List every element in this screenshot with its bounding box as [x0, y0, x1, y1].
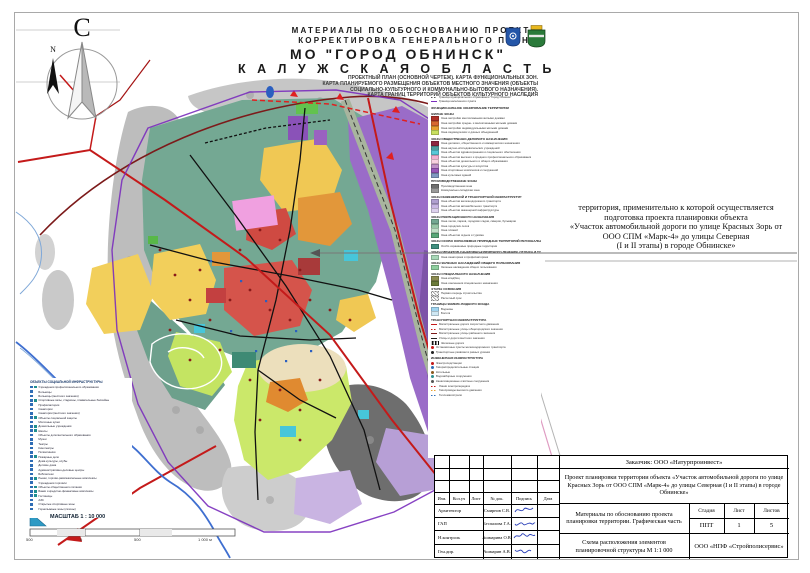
facility-marker-icon: [34, 429, 37, 432]
rail-icon: [431, 341, 439, 345]
legend-row-label: Болота: [441, 312, 450, 315]
obninsk-crest-icon: [505, 27, 521, 47]
legend-row-label: Электроподстанции: [436, 362, 462, 365]
facility-marker-icon: [34, 447, 37, 450]
social-legend-label: Горнолыжные зоны (склоны): [38, 507, 75, 511]
facility-marker-icon: [30, 508, 33, 511]
facility-marker-icon: [30, 429, 33, 432]
signer-role: ГАП: [436, 517, 485, 530]
legend-row-label: Зона садоводческих и дачных объединений: [441, 131, 498, 134]
legend-row-label: Водозаборные сооружения: [436, 375, 472, 378]
facility-marker-icon: [34, 408, 37, 411]
facility-marker-icon: [30, 412, 33, 415]
dot-icon: [431, 346, 434, 349]
legend-row-label: Магистральные дороги скоростного движени…: [439, 323, 499, 326]
legend-row-label: Зона застройки многоэтажными жилыми дома…: [441, 117, 505, 120]
facility-marker-icon: [34, 451, 37, 454]
legend-section-header: ФУНКЦИОНАЛЬНОЕ ЗОНИРОВАНИЕ ТЕРРИТОРИИ: [431, 106, 541, 111]
facility-marker-icon: [30, 486, 33, 489]
legend-row-label: Зона санаториев и профилакториев: [441, 256, 488, 259]
legend-section-header: ЗОНЫ ОСОБО ОХРАНЯЕМЫХ ПРИРОДНЫХ ТЕРРИТОР…: [431, 239, 541, 244]
swatch-icon: [431, 130, 439, 135]
legend-row: Зона санаториев и профилакториев: [431, 255, 541, 260]
legend-row-label: Коммунально-складская зона: [441, 189, 480, 192]
signature-scribble: [513, 505, 537, 515]
facility-marker-icon: [34, 499, 37, 502]
legend-row-label: Водоемы: [441, 308, 453, 311]
sheet-value: 1: [724, 518, 754, 533]
compass-north-letter: С: [73, 13, 90, 42]
legend-row: Зона объектов отдыха и туризма: [431, 233, 541, 238]
legend-row-label: Магистральные улицы районного значения: [439, 332, 495, 335]
facility-marker-icon: [34, 460, 37, 463]
stage-label: Стадия: [689, 503, 724, 518]
signer-role: Архитектор: [436, 504, 485, 517]
facility-marker-icon: [30, 421, 33, 424]
legend-row-label: Зона объектов высшего и среднего професс…: [441, 156, 531, 159]
annotation-line: ООО СПМ «Марк-4» до улицы Северная: [552, 232, 800, 242]
facility-marker-icon: [34, 494, 37, 497]
legend-row: Граница населенного пункта: [431, 100, 541, 105]
scale-tick-label: 500: [134, 537, 141, 542]
legend-row-label: Зона объектов инженерной инфраструктуры: [441, 209, 499, 212]
legend-row-label: Зона объектов отдыха и туризма: [441, 234, 484, 237]
org-name: ООО «НПФ «Стройполисервис»: [691, 534, 787, 559]
title-block: Изм.Кол.учЛист№ док.ПодписьДата Архитект…: [434, 455, 788, 558]
legend-row-label: Канализационные очистные сооружения: [436, 380, 489, 383]
facility-marker-icon: [30, 481, 33, 484]
facility-marker-icon: [34, 481, 37, 484]
legend-row-label: Котельные: [436, 371, 450, 374]
materials-line-2: КОРРЕКТИРОВКА ГЕНЕРАЛЬНОГО ПЛАНА: [238, 36, 538, 46]
facility-marker-icon: [34, 434, 37, 437]
legend-row-label: Зона лесов, парков, городских садов, скв…: [441, 220, 516, 223]
legend-row-label: Особо охраняемые природные территории: [441, 245, 497, 248]
subtitle-lines: ПРОЕКТНЫЙ ПЛАН (ОСНОВНОЙ ЧЕРТЕЖ). КАРТА …: [238, 76, 538, 99]
line-icon: [431, 333, 437, 334]
facility-marker-icon: [30, 477, 33, 480]
sheet-label: Лист: [724, 503, 754, 518]
kaluga-oblast-crest-icon: [527, 25, 546, 48]
tb-divider: [559, 456, 560, 559]
scale-tick-label: 500: [26, 537, 33, 542]
facility-marker-icon: [34, 473, 37, 476]
customer: Заказчик: ООО «Натурпроинвест»: [559, 456, 789, 468]
legend-row-label: Зона кладбищ: [441, 277, 460, 280]
region-title: К А Л У Ж С К А Я О Б Л А С Т Ь: [238, 62, 538, 76]
signer-name: Ашмарин А.В.: [483, 544, 511, 559]
facility-marker-icon: [34, 508, 37, 511]
legend-row-label: Магистральные улицы общегородского значе…: [439, 328, 503, 331]
social-legend-rows: Учреждения профессионального образования…: [30, 385, 132, 511]
north-arrow-icon: [47, 58, 59, 94]
swatch-icon: [431, 244, 439, 249]
dot-icon: [431, 362, 434, 365]
stage-value: ППТ: [689, 518, 724, 533]
facility-marker-icon: [34, 438, 37, 441]
dot-icon: [431, 351, 434, 354]
swatch-icon: [431, 265, 439, 270]
legend-row: Особо охраняемые природные территории: [431, 244, 541, 249]
social-legend-row: Горнолыжные зоны (склоны): [30, 507, 132, 511]
facility-marker-icon: [30, 399, 33, 402]
project-area-annotation: территория, применительно к которой осущ…: [552, 203, 800, 251]
legend-row-label: Расчетный срок: [441, 297, 462, 300]
legend-row-label: Зона спортивных комплексов и сооружений: [441, 169, 498, 172]
facility-marker-icon: [34, 455, 37, 458]
sheets-label: Листов: [754, 503, 789, 518]
facility-marker-icon: [30, 464, 33, 467]
legend-row-label: Зона застройки средне- и малоэтажными жи…: [441, 122, 517, 125]
annotation-line: территория, применительно к которой осущ…: [552, 203, 800, 213]
signer-role: Н.контроль: [436, 530, 485, 544]
signer-name: Беспалова Г.А.: [483, 517, 511, 530]
facility-marker-icon: [30, 395, 33, 398]
legend-row-label: Зона застройки индивидуальными жилыми до…: [441, 127, 508, 130]
facility-marker-icon: [30, 451, 33, 454]
legend-row-label: Тепломагистрали: [439, 394, 462, 397]
annotation-line: подготовка проекта планировки объекта: [552, 213, 800, 223]
signer-name: Ашмарина О.В.: [483, 530, 511, 544]
line-dash-icon: [431, 395, 437, 396]
legend-row-label: Первая очередь строительства: [441, 292, 482, 295]
hatch-icon: [431, 296, 439, 301]
swatch-icon: [431, 173, 439, 178]
materials-line-1: МАТЕРИАЛЫ ПО ОБОСНОВАНИЮ ПРОЕКТА: [238, 26, 538, 36]
compass-rose: С N: [47, 13, 117, 119]
project-title: Проект планировки территории объекта «Уч…: [563, 469, 785, 502]
facility-marker-icon: [30, 503, 33, 506]
legend-row-label: Зеленые насаждения общего пользования: [441, 266, 497, 269]
facility-marker-icon: [34, 486, 37, 489]
legend-row: Зона объектов инженерной инфраструктуры: [431, 209, 541, 214]
signature-scribble: [513, 545, 537, 555]
facility-marker-icon: [34, 403, 37, 406]
line-dash-icon: [431, 390, 437, 391]
revision-header-cell: Изм.: [435, 492, 449, 504]
facility-marker-icon: [30, 494, 33, 497]
facility-marker-icon: [30, 460, 33, 463]
facility-marker-icon: [34, 395, 37, 398]
revision-header-cell: Лист: [469, 492, 483, 504]
facility-marker-icon: [30, 434, 33, 437]
legend-row: Расчетный срок: [431, 296, 541, 301]
facility-marker-icon: [30, 438, 33, 441]
legend-row-label: Газораспределительные станции: [436, 366, 479, 369]
swatch-icon: [431, 188, 439, 193]
legend-row-label: Зона культовых зданий: [441, 174, 471, 177]
facility-marker-icon: [34, 390, 37, 393]
scale-tick-label: 1 000 м: [198, 537, 212, 542]
legend-row-label: Зона озеленения специального назначения: [441, 282, 498, 285]
legend-row-label: Железные дороги: [441, 342, 464, 345]
functional-zones-legend: Граница муниципального образования "Горо…: [428, 95, 541, 458]
facility-marker-icon: [34, 442, 37, 445]
signature-scribble: [513, 531, 537, 541]
facility-marker-icon: [34, 477, 37, 480]
facility-marker-icon: [34, 416, 37, 419]
facility-marker-icon: [34, 399, 37, 402]
facility-marker-icon: [30, 403, 33, 406]
facility-marker-icon: [30, 416, 33, 419]
legend-row-label: Зона научно-исследовательских учреждений: [441, 147, 500, 150]
facility-marker-icon: [30, 442, 33, 445]
line-dash-icon: [431, 386, 437, 387]
facility-marker-icon: [34, 490, 37, 493]
facility-marker-icon: [30, 408, 33, 411]
legend-row-label: Зона объектов здравоохранения и социальн…: [441, 151, 521, 154]
facility-marker-icon: [34, 425, 37, 428]
legend-row: Зона садоводческих и дачных объединений: [431, 130, 541, 135]
signature-scribble: [513, 518, 537, 528]
scale-tick-label: 0: [80, 537, 82, 542]
line-icon: [431, 338, 437, 339]
facility-marker-icon: [30, 468, 33, 471]
revision-header-cell: Дата: [537, 492, 559, 504]
legend-row-label: Линии электропередачи: [439, 385, 470, 388]
facility-marker-icon: [30, 473, 33, 476]
dot-icon: [431, 366, 434, 369]
legend-section-header: ЗОНЫ ОБЪЕКТОВ САНАТОРНО-КУРОРТНОГО ЛЕЧЕН…: [431, 250, 541, 255]
legend-row-label: Газопроводы высокого давления: [439, 389, 482, 392]
swatch-icon: [431, 311, 439, 316]
signer-name: Смирнов С.В.: [483, 504, 511, 517]
legend-row: Зеленые насаждения общего пользования: [431, 266, 541, 271]
legend-row: Зона озеленения специального назначения: [431, 281, 541, 286]
sheets-value: 5: [754, 518, 789, 533]
legend-row-label: Зона пляжей: [441, 229, 458, 232]
swatch-icon: [431, 208, 439, 213]
legend-row-label: Остановочные пункты железнодорожного тра…: [436, 346, 506, 349]
legend-row: Транспортные развязки в разных уровнях: [431, 350, 541, 355]
line-dash-icon: [431, 329, 437, 330]
legend-row-label: Транспортные развязки в разных уровнях: [436, 351, 490, 354]
facility-marker-icon: [34, 421, 37, 424]
facility-marker-icon: [30, 386, 33, 389]
swatch-icon: [431, 233, 439, 238]
line-icon: [431, 324, 437, 325]
facility-marker-icon: [30, 425, 33, 428]
swatch-icon: [431, 255, 439, 260]
municipality-title: МО "ГОРОД ОБНИНСК": [238, 47, 538, 62]
facility-marker-icon: [30, 390, 33, 393]
swatch-icon: [431, 281, 439, 286]
facility-marker-icon: [30, 499, 33, 502]
facility-marker-icon: [34, 412, 37, 415]
legend-row-label: Зона объектов культуры и искусства: [441, 165, 488, 168]
annotation-line: (I и II этапы) в городе Обнинске»: [552, 241, 800, 251]
facility-marker-icon: [30, 490, 33, 493]
revision-header-cell: № док.: [483, 492, 511, 504]
facility-marker-icon: [30, 447, 33, 450]
legend-row: Болота: [431, 312, 541, 317]
facility-marker-icon: [34, 464, 37, 467]
scale-label: МАСШТАБ 1 : 10 000: [50, 514, 105, 520]
sheet-title: Схема расположения элементов планировочн…: [563, 534, 685, 559]
revision-header-cell: Кол.уч: [449, 492, 469, 504]
legend-row-label: Улицы и дороги местного значения: [439, 337, 485, 340]
dot-icon: [431, 371, 434, 374]
facility-marker-icon: [34, 503, 37, 506]
map-grid-lines: [16, 30, 120, 82]
signer-role: Ген.дир.: [436, 544, 485, 559]
doc-title: Материалы по обоснованию проекта планиро…: [563, 504, 685, 532]
legend-row: Зона культовых зданий: [431, 173, 541, 178]
subtitle-line: КАРТА ГРАНИЦ ТЕРРИТОРИЙ ОБЪЕКТОВ КУЛЬТУР…: [238, 93, 538, 99]
revision-header-cell: Подпись: [511, 492, 537, 504]
legend-row-label: Зона объектов автомобильного транспорта: [441, 205, 497, 208]
drawing-header: МАТЕРИАЛЫ ПО ОБОСНОВАНИЮ ПРОЕКТА КОРРЕКТ…: [238, 26, 538, 99]
legend-row: Тепломагистрали: [431, 393, 541, 398]
social-infrastructure-legend: ОБЪЕКТЫ СОЦИАЛЬНОЙ ИНФРАСТРУКТУРЫ Учрежд…: [28, 378, 132, 518]
dot-icon: [431, 375, 434, 378]
line-icon: [431, 101, 437, 102]
facility-marker-icon: [34, 386, 37, 389]
legend-row-label: Производственная зона: [441, 185, 472, 188]
legend-row-label: Зона городских лесов: [441, 225, 469, 228]
legend-row-label: Зона объектов железнодорожного транспорт…: [441, 200, 501, 203]
legend-row-label: Зона делового, общественного и коммерчес…: [441, 142, 520, 145]
facility-marker-icon: [34, 468, 37, 471]
compass-n-label: N: [50, 45, 56, 54]
annotation-line: «Участок автомобильной дороги по улице К…: [552, 222, 800, 232]
dot-icon: [431, 380, 434, 383]
facility-marker-icon: [30, 455, 33, 458]
legend-row-label: Зона объектов дошкольного и общего образ…: [441, 160, 508, 163]
legend-row: Коммунально-складская зона: [431, 189, 541, 194]
legend-row-label: Граница населенного пункта: [439, 100, 476, 103]
